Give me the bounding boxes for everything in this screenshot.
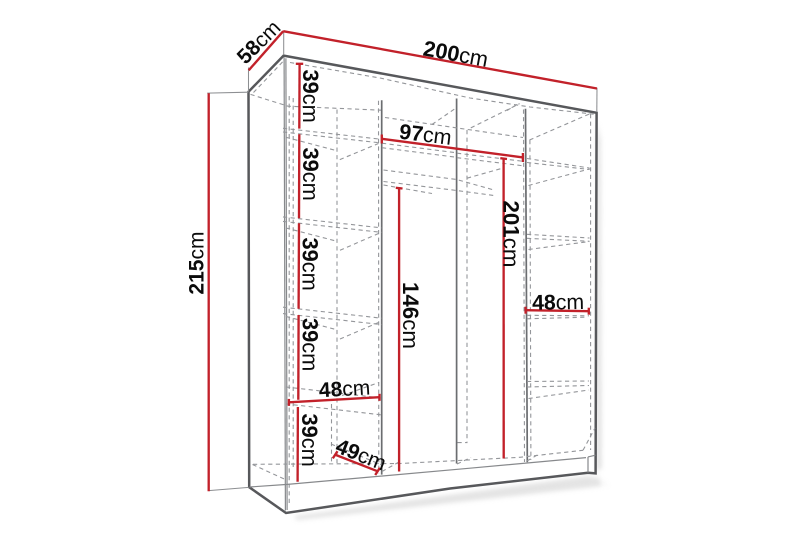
svg-text:39cm: 39cm xyxy=(297,414,322,467)
svg-text:39cm: 39cm xyxy=(298,70,323,123)
svg-text:215cm: 215cm xyxy=(186,232,209,295)
svg-text:39cm: 39cm xyxy=(298,238,323,291)
svg-text:48cm: 48cm xyxy=(318,376,371,402)
svg-text:201cm: 201cm xyxy=(499,201,524,268)
svg-text:48cm: 48cm xyxy=(532,290,585,315)
svg-text:39cm: 39cm xyxy=(298,148,323,201)
svg-text:39cm: 39cm xyxy=(297,318,322,371)
svg-text:146cm: 146cm xyxy=(398,282,423,349)
